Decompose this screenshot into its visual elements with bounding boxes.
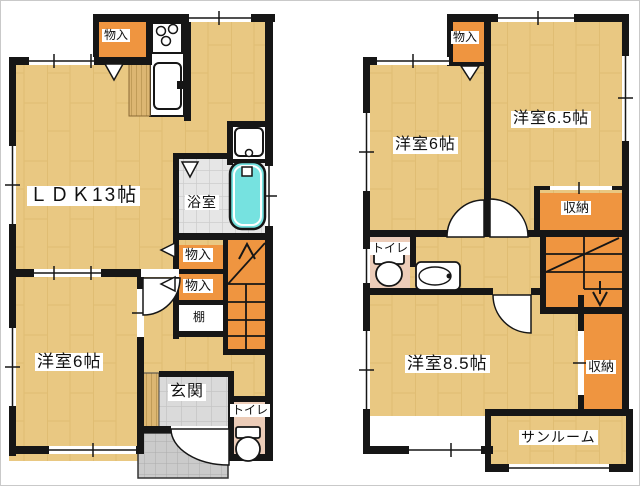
floor-plan-drawing bbox=[1, 1, 639, 485]
room-label-entrance: 玄関 bbox=[168, 384, 206, 401]
room-label-bath: 浴室 bbox=[185, 195, 219, 210]
washbasin1-icon bbox=[235, 128, 263, 157]
stove-icon bbox=[152, 23, 182, 53]
room-label-bedroom85: 洋室8.5帖 bbox=[405, 355, 490, 373]
sink-icon bbox=[154, 63, 183, 109]
room-label-closet-top-2f: 物入 bbox=[451, 31, 479, 44]
washbasin2-icon bbox=[416, 262, 460, 290]
room-label-closet-a: 物入 bbox=[183, 248, 213, 262]
room-label-bedroom6-1f: 洋室6帖 bbox=[35, 353, 103, 371]
room-label-shelf: 棚 bbox=[191, 311, 207, 324]
room-label-sunroom: サンルーム bbox=[519, 430, 598, 445]
toilet1-icon bbox=[236, 427, 260, 461]
entrance-floor bbox=[159, 373, 228, 433]
room-label-bedroom6-2f: 洋室6帖 bbox=[393, 137, 458, 154]
room-label-toilet-1f: トイレ bbox=[230, 404, 270, 417]
floor-plan-image: 物入 ＬＤＫ13帖 浴室 物入 物入 棚 洋室6帖 玄関 トイレ 物入 洋室6帖… bbox=[0, 0, 640, 486]
room-label-closet-top-1f: 物入 bbox=[102, 29, 130, 42]
room-label-toilet-2f: トイレ bbox=[370, 242, 410, 255]
room-label-closet-b: 物入 bbox=[183, 279, 213, 293]
kitchen-side-counter bbox=[129, 61, 150, 116]
room-label-bedroom65: 洋室6.5帖 bbox=[511, 111, 591, 128]
room-label-storage-right: 収納 bbox=[586, 360, 616, 374]
room-label-storage-top: 収納 bbox=[561, 201, 591, 215]
toilet2-icon bbox=[374, 253, 404, 286]
bathtub-icon bbox=[230, 162, 265, 229]
room-label-ldk: ＬＤＫ13帖 bbox=[27, 186, 140, 206]
